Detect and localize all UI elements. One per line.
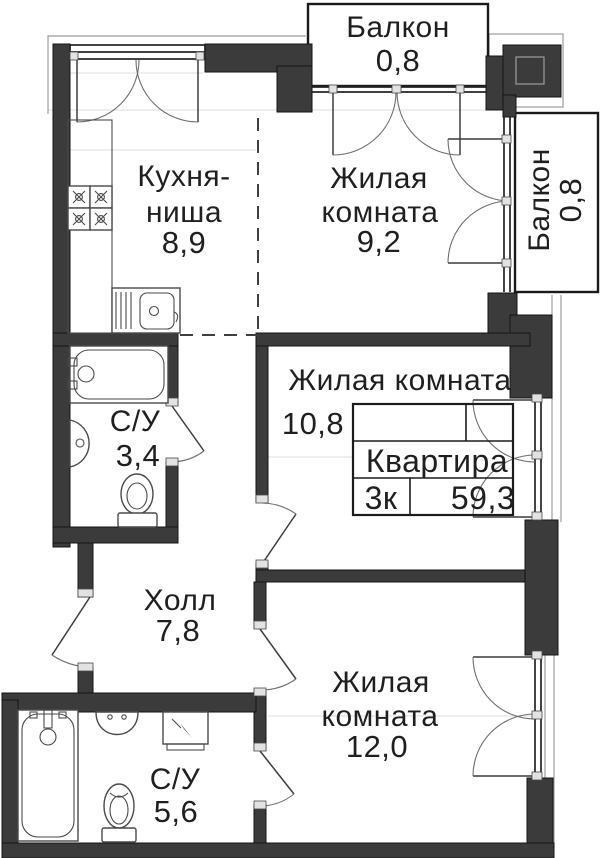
floor-plan-canvas: Квартира 3к 59,3 Балкон 0,8 Кухня- ниша … [0,0,600,858]
balcony-top-label: Балкон [346,11,450,44]
balcony-top-area: 0,8 [376,43,421,78]
wall-hall-east-upper [256,346,268,502]
stamp-title: Квартира [366,443,508,479]
wall-outer-left-bottom [2,700,18,858]
wall-living-mid-top [256,333,530,346]
living-mid-label: Жилая комната [288,364,511,397]
living-mid-area: 10,8 [282,406,344,441]
floor-plan: Квартира 3к 59,3 Балкон 0,8 Кухня- ниша … [0,0,600,858]
bathroom-small-door [172,406,204,462]
wall-bathroom-small-east-2 [166,463,178,527]
living-bottom-label-line1: Жилая [332,666,429,699]
living-top-right-balcony-door [448,113,510,292]
entrance-door [52,597,90,667]
living-bottom-area: 12,0 [346,729,408,764]
kitchen-area: 8,9 [162,225,207,260]
balcony-right-area: 0,8 [553,178,588,223]
living-top-label-line1: Жилая [330,162,427,195]
bathroom-large-label: С/У [150,763,201,796]
bathroom-small-label: С/У [110,405,161,438]
stamp-total-area: 59,3 [451,480,515,516]
wall-living-bottom-west-3 [254,805,266,845]
sink-large-icon [96,712,138,735]
toilet-large-icon [102,784,136,842]
bathtub-small-icon [68,346,168,403]
wall-step-block [277,66,312,112]
kitchen-label-line1: Кухня- [137,160,230,193]
wall-bathroom-small-bottom [53,527,178,543]
bathroom-small-area: 3,4 [116,438,161,473]
toilet-small-icon [118,474,157,527]
kitchen-sink-icon [112,288,180,333]
hall-area: 7,8 [156,613,201,648]
wall-hall-living-bottom [256,570,530,582]
wall-bathroom-large-top [2,693,256,712]
bathtub-large-icon [18,710,78,841]
hall-living-mid-door [262,503,296,564]
wall-left [53,44,70,547]
bathroom-large-door [260,751,294,806]
structural-column [503,45,561,97]
wall-right-between-windows [525,520,558,655]
washing-machine-icon [163,712,208,750]
bathroom-large-area: 5,6 [154,794,199,829]
wall-bottom [2,843,554,858]
stove-icon [68,186,112,230]
living-top-balcony-door [310,87,486,155]
stamp-rooms-count: 3к [365,480,398,516]
balcony-right-label: Балкон [523,148,556,252]
living-top-area: 9,2 [357,224,402,259]
apartment-stamp: Квартира 3к 59,3 [353,404,515,516]
living-bottom-door [260,629,296,690]
sink-small-icon [70,420,89,467]
wall-right-bottom-corner [527,778,553,843]
wall-bathroom-small-top [53,333,178,346]
